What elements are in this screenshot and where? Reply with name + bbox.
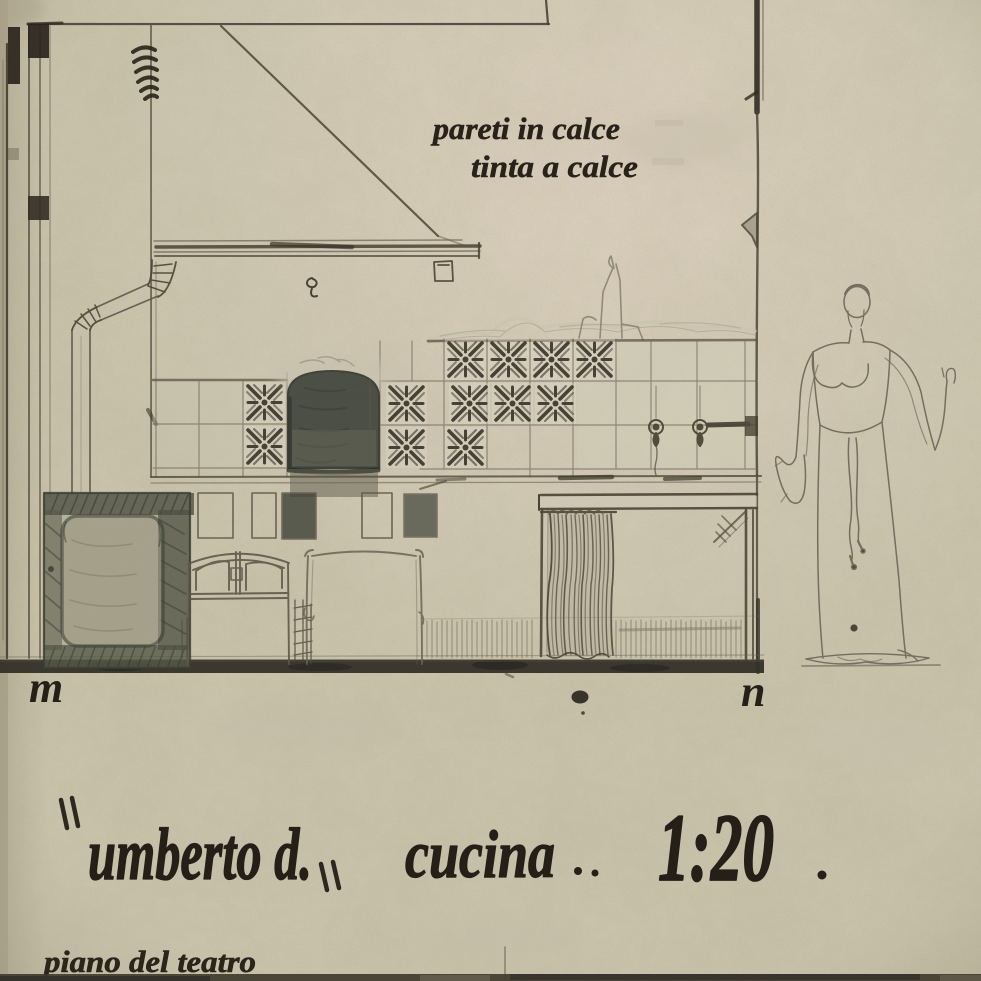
svg-text:m: m <box>29 663 63 712</box>
svg-text:pareti in calce: pareti in calce <box>430 111 620 146</box>
svg-text:umberto d.: umberto d. <box>88 814 312 896</box>
svg-text:1:20: 1:20 <box>658 794 774 901</box>
svg-text:piano del teatro: piano del teatro <box>41 944 256 979</box>
svg-text:tinta a calce: tinta a calce <box>471 149 638 184</box>
svg-text:cucina: cucina <box>405 816 555 892</box>
svg-text:n: n <box>741 667 765 716</box>
